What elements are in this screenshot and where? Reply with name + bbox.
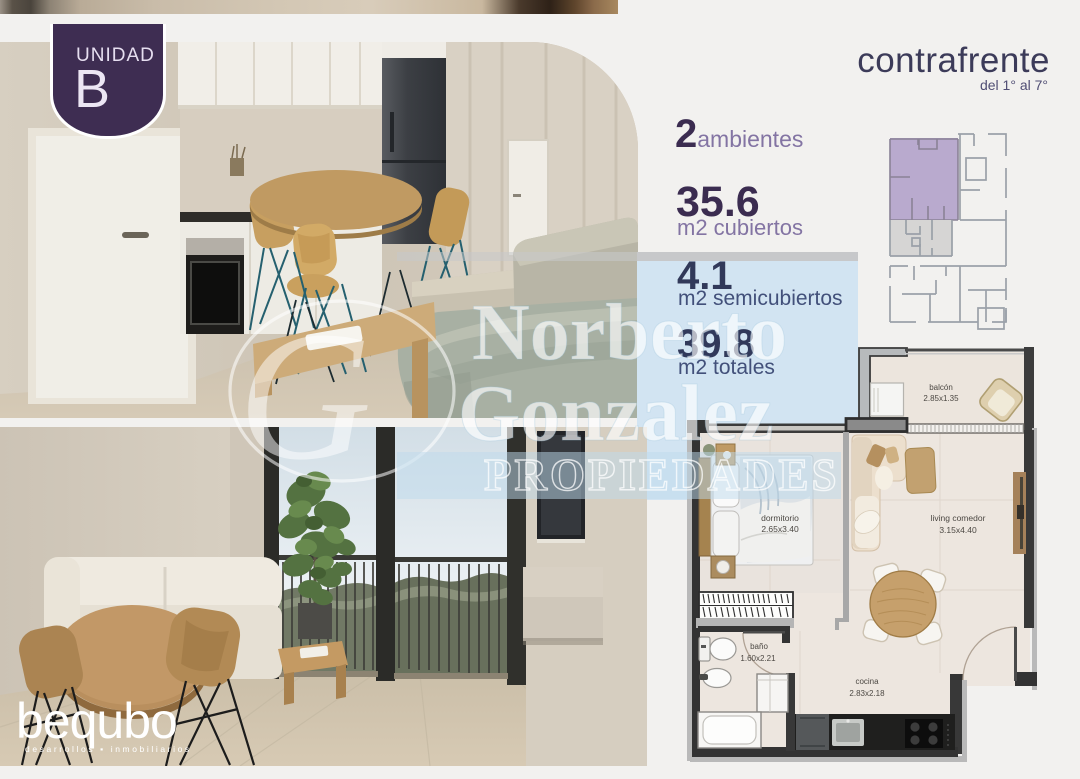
svg-text:2.65x3.40: 2.65x3.40: [761, 524, 799, 534]
svg-text:3.15x4.40: 3.15x4.40: [939, 525, 977, 535]
svg-text:2.85x1.35: 2.85x1.35: [923, 394, 959, 403]
svg-text:baño: baño: [750, 642, 768, 651]
svg-text:cocina: cocina: [855, 677, 879, 686]
svg-text:2.83x2.18: 2.83x2.18: [849, 689, 885, 698]
svg-text:dormitorio: dormitorio: [761, 513, 799, 523]
svg-text:living comedor: living comedor: [931, 513, 986, 523]
svg-text:balcón: balcón: [929, 383, 953, 392]
svg-text:1.60x2.21: 1.60x2.21: [740, 654, 776, 663]
